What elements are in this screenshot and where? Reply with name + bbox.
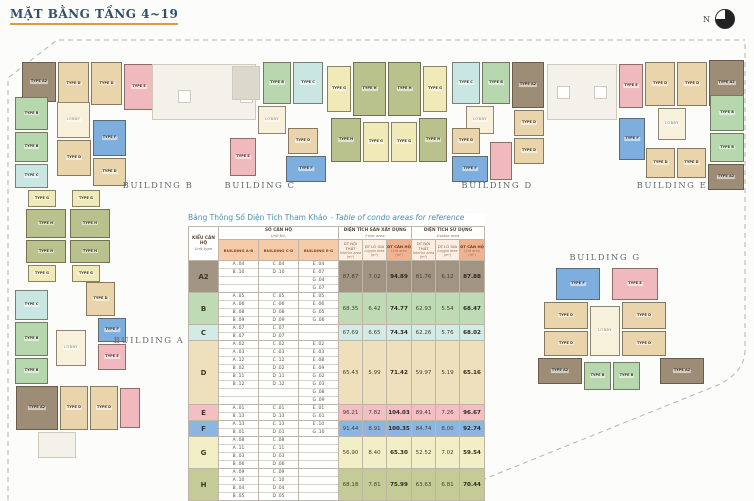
plan-unit-d: TYPE D — [60, 386, 88, 430]
plan-unit-f: TYPE F — [619, 118, 645, 160]
unit-type-vn: KIỂU CĂN HỘ — [189, 236, 218, 246]
loggia-area-value: 5.54 — [436, 293, 460, 325]
plan-unit-d: TYPE D — [93, 158, 126, 186]
col-header-loggia-floor: DT LÔ GIA Loggia area (m²) — [363, 240, 387, 261]
unit-area-value: 59.54 — [460, 437, 485, 469]
unit-number: C .01 — [259, 405, 298, 413]
plan-unit-d: TYPE D — [514, 110, 544, 136]
plan-unit-label: TYPE D — [92, 297, 108, 301]
plan-lobby: LOBBY — [57, 102, 90, 138]
interior-area-value: 84.74 — [412, 421, 436, 437]
area-row-f: FA .13B .01C .13D .01E .10G .1091.448.91… — [189, 421, 485, 437]
unit-number: D .05 — [259, 493, 298, 500]
plan-unit-a2: TYPE A2 — [22, 62, 56, 102]
loggia-area-value: 5.99 — [363, 341, 387, 405]
interior-area-value: 59.97 — [412, 341, 436, 405]
unit-number: B .02 — [219, 365, 258, 373]
plan-area — [232, 66, 260, 100]
col-header-interior-floor: DT NỘI THẤT Interior area (m²) — [339, 240, 363, 261]
unit-numbers-ab: A .07B .07 — [219, 325, 259, 341]
unit-numbers-cd: C .01D .13 — [259, 405, 299, 421]
unit-number — [299, 445, 338, 453]
col-header-unit-type: KIỂU CĂN HỘ Unit type — [189, 227, 219, 261]
unit-numbers-eg: E .05E .06G .05G .06 — [299, 293, 339, 325]
unit-number: B .11 — [219, 373, 258, 381]
unit-number: G .02 — [299, 373, 338, 381]
sub-vn: DT LÔ GIA — [363, 244, 386, 249]
unit-number — [299, 485, 338, 493]
plan-unit-d: TYPE D — [58, 62, 89, 105]
unit-type-cell: B — [189, 293, 219, 325]
interior-area-value: 91.44 — [339, 421, 363, 437]
plan-unit-h: TYPE H — [419, 118, 447, 162]
unit-numbers-cd: C .02C .03C .12D .02D .11D .12 — [259, 341, 299, 405]
area-table-section: Bảng Thông Số Diện Tích Tham Khảo- Table… — [188, 213, 485, 501]
plan-unit-d: TYPE D — [544, 302, 588, 329]
unit-numbers-ab: A .09A .10B .04B .05 — [219, 469, 259, 501]
loggia-area-value: 7.02 — [363, 261, 387, 293]
floor-area-en: Floor area — [339, 233, 411, 238]
unit-number: E .01 — [299, 405, 338, 413]
unit-number — [299, 477, 338, 485]
unit-number — [259, 397, 298, 404]
unit-number — [219, 285, 258, 292]
plan-unit-label: TYPE D — [521, 121, 537, 125]
plan-unit-label: TYPE E — [623, 84, 639, 88]
unit-number: D .01 — [259, 429, 298, 436]
plan-unit-g: TYPE G — [423, 66, 447, 112]
unit-number: G .07 — [299, 285, 338, 292]
plan-unit-label: TYPE D — [66, 156, 82, 160]
plan-unit-label: TYPE F — [102, 136, 118, 140]
plan-unit-d: TYPE D — [645, 62, 675, 106]
plan-unit-label: TYPE H — [82, 250, 98, 254]
plan-unit-f: TYPE F — [286, 156, 326, 182]
col-header-building-ab: BUILDING A-B — [219, 240, 259, 261]
unit-number: B .09 — [219, 317, 258, 324]
interior-area-value: 96.21 — [339, 405, 363, 421]
interior-area-value: 89.41 — [412, 405, 436, 421]
interior-area-value: 87.87 — [339, 261, 363, 293]
building-e-label: BUILDING E — [637, 181, 708, 191]
unit-number: C .07 — [259, 325, 298, 333]
plan-unit-g: TYPE G — [28, 190, 56, 207]
plan-lobby-label: LOBBY — [597, 329, 613, 333]
plan-unit-label: TYPE E — [104, 355, 120, 359]
unit-numbers-eg — [299, 437, 339, 469]
unit-number: B .04 — [219, 485, 258, 493]
unit-number: A .03 — [219, 349, 258, 357]
plan-unit-b: TYPE B — [15, 132, 48, 162]
unit-number: C .04 — [259, 261, 298, 269]
plan-unit-label: TYPE D — [98, 82, 114, 86]
unit-number: G .09 — [299, 397, 338, 404]
unit-numbers-ab: A .05A .06B .08B .09 — [219, 293, 259, 325]
plan-unit-label: TYPE D — [458, 139, 474, 143]
unit-type-cell: D — [189, 341, 219, 405]
unit-number: C .13 — [259, 421, 298, 429]
plan-unit-d: TYPE D — [288, 128, 318, 154]
plan-unit-label: TYPE E — [627, 282, 643, 286]
plan-unit-label: TYPE G — [78, 272, 94, 276]
plan-unit-h: TYPE H — [388, 62, 421, 116]
unit-area-value: 70.44 — [460, 469, 485, 501]
loggia-area-value: 5.19 — [436, 341, 460, 405]
unit-area-value: 104.03 — [387, 405, 412, 421]
plan-unit-label: TYPE G — [427, 87, 443, 91]
unit-numbers-cd: C .04D .10 — [259, 261, 299, 293]
plan-unit-e — [120, 388, 140, 428]
plan-unit-e: TYPE E — [619, 64, 643, 108]
plan-unit-label: TYPE D — [521, 149, 537, 153]
unit-numbers-eg — [299, 469, 339, 501]
plan-unit-a2: TYPE A2 — [660, 358, 704, 384]
interior-area-value: 56.90 — [339, 437, 363, 469]
sub-unit: (m²) — [436, 253, 459, 257]
plan-unit-h: TYPE H — [70, 240, 110, 263]
sub-en: Loggia area — [363, 249, 386, 253]
plan-unit-d: TYPE D — [91, 62, 122, 105]
unit-number: B .07 — [219, 333, 258, 340]
unit-number — [219, 389, 258, 397]
unit-area-value: 75.99 — [387, 469, 412, 501]
area-table-header: KIỂU CĂN HỘ Unit type SỐ CĂN HỘ Unit No.… — [189, 227, 485, 261]
plan-unit-g: TYPE G — [391, 122, 417, 162]
unit-number: A .08 — [219, 437, 258, 445]
plan-unit-d: TYPE D — [544, 331, 588, 356]
plan-unit-label: TYPE H — [82, 222, 98, 226]
plan-unit-h: TYPE H — [70, 209, 110, 238]
sub-unit: (m²) — [460, 253, 484, 257]
loggia-area-value: 7.81 — [363, 469, 387, 501]
building-b-label: BUILDING B — [123, 181, 194, 191]
plan-unit-label: TYPE G — [396, 140, 412, 144]
interior-area-value: 52.52 — [412, 437, 436, 469]
unit-number: B .06 — [219, 461, 258, 468]
plan-unit-label: TYPE G — [78, 197, 94, 201]
unit-number: A .02 — [219, 341, 258, 349]
plan-unit-d: TYPE D — [622, 302, 666, 329]
plan-unit-label: TYPE H — [396, 87, 412, 91]
unit-numbers-ab: A .04B .10 — [219, 261, 259, 293]
plan-unit-a2: TYPE A2 — [16, 386, 58, 430]
plan-lobby-label: LOBBY — [264, 118, 280, 122]
unit-numbers-eg: E .01G .01 — [299, 405, 339, 421]
unit-type-cell: C — [189, 325, 219, 341]
plan-unit-label: TYPE B — [719, 111, 735, 115]
unit-type-cell: G — [189, 437, 219, 469]
plan-unit-c: TYPE C — [15, 164, 48, 188]
unit-area-value: 94.89 — [387, 261, 412, 293]
col-header-unit-no: SỐ CĂN HỘ Unit No. — [219, 227, 339, 240]
unit-number: C .09 — [259, 469, 298, 477]
unit-number: A .10 — [219, 477, 258, 485]
plan-unit-label: TYPE F — [104, 328, 120, 332]
plan-unit-b: TYPE B — [613, 362, 640, 390]
plan-unit-e — [490, 142, 512, 180]
sub-vn: DT NỘI THẤT — [339, 241, 362, 251]
unit-number: D .08 — [259, 309, 298, 317]
area-row-c: CA .07B .07C .07D .07 67.696.6574.3462.2… — [189, 325, 485, 341]
col-header-building-eg: BUILDING E-G — [299, 240, 339, 261]
plan-unit-e: TYPE E — [612, 268, 658, 300]
plan-unit-h: TYPE H — [26, 240, 66, 263]
area-row-h: HA .09A .10B .04B .05C .09C .10D .04D .0… — [189, 469, 485, 501]
loggia-area-value: 7.26 — [436, 405, 460, 421]
plan-unit-label: TYPE D — [101, 170, 117, 174]
unit-number: D .07 — [259, 333, 298, 340]
unit-numbers-ab: A .02A .03A .12B .02B .11B .12 — [219, 341, 259, 405]
unit-number — [299, 453, 338, 461]
plan-unit-label: TYPE B — [24, 337, 40, 341]
plan-unit-label: TYPE D — [558, 342, 574, 346]
plan-unit-label: TYPE B — [488, 81, 504, 85]
plan-unit-f: TYPE F — [93, 120, 126, 156]
plan-unit-b: TYPE B — [15, 97, 48, 130]
unit-number: G .06 — [299, 317, 338, 324]
area-table-body: A2A .04B .10 C .04D .10 E .04E .07G .04G… — [189, 261, 485, 501]
unit-number: D .03 — [259, 453, 298, 461]
unit-number: G .10 — [299, 429, 338, 436]
loggia-area-value: 8.40 — [363, 437, 387, 469]
unit-number — [299, 325, 338, 333]
sub-vn: DT CĂN HỘ — [387, 244, 411, 249]
unit-number: C .12 — [259, 357, 298, 365]
plan-unit-g: TYPE G — [28, 265, 56, 282]
unit-number: E .08 — [299, 357, 338, 365]
page-title: MẶT BẰNG TẦNG 4~19 — [10, 7, 178, 25]
unit-area-value: 65.30 — [387, 437, 412, 469]
unit-number: E .09 — [299, 365, 338, 373]
unit-number: C .03 — [259, 349, 298, 357]
unit-number — [299, 461, 338, 468]
unit-numbers-cd: C .09C .10D .04D .05 — [259, 469, 299, 501]
plan-unit-label: TYPE D — [684, 82, 700, 86]
plan-unit-label: TYPE C — [458, 81, 474, 85]
plan-unit-label: TYPE F — [570, 282, 586, 286]
plan-unit-label: TYPE B — [24, 112, 40, 116]
loggia-area-value: 7.02 — [436, 437, 460, 469]
plan-unit-label: TYPE H — [38, 222, 54, 226]
unit-number: A .12 — [219, 357, 258, 365]
unit-numbers-eg: E .02E .03E .08E .09G .02G .03G .08G .09 — [299, 341, 339, 405]
unit-number: E .02 — [299, 341, 338, 349]
plan-unit-d: TYPE D — [646, 148, 675, 178]
table-caption: Bảng Thông Số Diện Tích Tham Khảo- Table… — [188, 213, 485, 222]
plan-unit-label: TYPE G — [368, 140, 384, 144]
area-row-g: GA .08A .11B .03B .06C .08C .11D .03D .0… — [189, 437, 485, 469]
plan-unit-label: TYPE D — [683, 161, 699, 165]
unit-number: E .03 — [299, 349, 338, 357]
unit-number: A .05 — [219, 293, 258, 301]
compass-icon — [712, 6, 738, 32]
plan-unit-label: TYPE C — [24, 303, 40, 307]
unit-number: C .08 — [259, 437, 298, 445]
plan-unit-label: TYPE F — [624, 137, 640, 141]
unit-type-cell: F — [189, 421, 219, 437]
plan-unit-label: TYPE D — [295, 139, 311, 143]
unit-numbers-eg — [299, 325, 339, 341]
unit-area-value: 100.35 — [387, 421, 412, 437]
plan-unit-label: TYPE B — [719, 146, 735, 150]
unit-number: A .01 — [219, 405, 258, 413]
plan-unit-c: TYPE C — [15, 290, 48, 320]
plan-unit-f: TYPE F — [452, 156, 488, 182]
plan-unit-b: TYPE B — [15, 358, 48, 384]
plan-area — [557, 86, 570, 99]
plan-unit-label: TYPE A2 — [717, 175, 735, 179]
sub-vn: DT CĂN HỘ — [460, 244, 484, 249]
interior-area-value: 65.43 — [339, 341, 363, 405]
plan-unit-label: TYPE D — [65, 82, 81, 86]
unit-number: B .13 — [219, 413, 258, 420]
unit-area-value: 74.77 — [387, 293, 412, 325]
plan-unit-d: TYPE D — [90, 386, 118, 430]
unit-numbers-ab: A .13B .01 — [219, 421, 259, 437]
plan-unit-label: TYPE G — [34, 197, 50, 201]
unit-number: D .04 — [259, 485, 298, 493]
usable-area-en: Usable area — [412, 233, 484, 238]
unit-number — [299, 493, 338, 500]
north-label: N — [703, 15, 710, 24]
unit-number — [259, 389, 298, 397]
unit-number: G .04 — [299, 277, 338, 285]
plan-unit-d: TYPE D — [677, 62, 707, 106]
unit-number — [219, 277, 258, 285]
plan-unit-g: TYPE G — [363, 122, 389, 162]
unit-number: D .02 — [259, 365, 298, 373]
unit-number: C .10 — [259, 477, 298, 485]
col-header-unit-area-usable: DT CĂN HỘ Unit area (m²) — [460, 240, 485, 261]
unit-area-value: 92.74 — [460, 421, 485, 437]
plan-unit-label: TYPE D — [96, 406, 112, 410]
table-caption-vn: Bảng Thông Số Diện Tích Tham Khảo — [188, 213, 327, 222]
table-caption-en: - Table of condo areas for reference — [330, 213, 464, 222]
loggia-area-value: 6.42 — [363, 293, 387, 325]
plan-unit-label: TYPE E — [131, 85, 147, 89]
plan-unit-label: TYPE A2 — [30, 80, 48, 84]
unit-numbers-cd: C .05C .06D .08D .09 — [259, 293, 299, 325]
plan-unit-label: TYPE A2 — [717, 81, 735, 85]
plan-unit-a2: TYPE A2 — [538, 358, 582, 384]
building-d-label: BUILDING D — [461, 181, 532, 191]
plan-area — [594, 86, 607, 99]
interior-area-value: 68.18 — [339, 469, 363, 501]
plan-lobby-label: LOBBY — [63, 346, 79, 350]
unit-number: E .05 — [299, 293, 338, 301]
plan-unit-label: TYPE H — [361, 87, 377, 91]
unit-number — [219, 397, 258, 404]
plan-unit-label: TYPE E — [235, 155, 251, 159]
area-row-e: EA .01B .13C .01D .13E .01G .0196.217.82… — [189, 405, 485, 421]
unit-type-en: Unit type — [189, 246, 218, 251]
sub-unit: (m²) — [339, 255, 362, 259]
sub-vn: DT NỘI THẤT — [412, 241, 435, 251]
unit-number: E .04 — [299, 261, 338, 269]
unit-number: C .02 — [259, 341, 298, 349]
loggia-area-value: 6.65 — [363, 325, 387, 341]
unit-number: G .08 — [299, 389, 338, 397]
area-row-d: DA .02A .03A .12B .02B .11B .12 C .02C .… — [189, 341, 485, 405]
plan-unit-label: TYPE H — [38, 250, 54, 254]
plan-unit-b: TYPE B — [710, 95, 744, 131]
unit-numbers-cd: C .13D .01 — [259, 421, 299, 437]
unit-area-value: 87.88 — [460, 261, 485, 293]
col-header-floor-area: DIỆN TÍCH SÀN XÂY DỰNG Floor area — [339, 227, 412, 240]
unit-number: E .06 — [299, 301, 338, 309]
plan-unit-d: TYPE D — [86, 282, 115, 316]
loggia-area-value: 7.82 — [363, 405, 387, 421]
plan-unit-c: TYPE C — [452, 62, 480, 104]
unit-numbers-ab: A .01B .13 — [219, 405, 259, 421]
unit-numbers-eg: E .10G .10 — [299, 421, 339, 437]
unit-number: A .11 — [219, 445, 258, 453]
unit-number — [299, 333, 338, 340]
loggia-area-value: 8.00 — [436, 421, 460, 437]
unit-number — [259, 277, 298, 285]
area-table: KIỂU CĂN HỘ Unit type SỐ CĂN HỘ Unit No.… — [188, 226, 485, 501]
plan-lobby: LOBBY — [658, 108, 686, 140]
unit-numbers-eg: E .04E .07G .04G .07 — [299, 261, 339, 293]
unit-number: E .07 — [299, 269, 338, 277]
plan-unit-label: TYPE H — [425, 138, 441, 142]
interior-area-value: 63.63 — [412, 469, 436, 501]
building-c-label: BUILDING C — [224, 181, 295, 191]
unit-type-cell: A2 — [189, 261, 219, 293]
area-row-b: BA .05A .06B .08B .09C .05C .06D .08D .0… — [189, 293, 485, 325]
plan-unit-label: TYPE D — [652, 161, 668, 165]
plan-lobby-label: LOBBY — [472, 118, 488, 122]
plan-area — [38, 432, 76, 458]
col-header-building-cd: BUILDING C-D — [259, 240, 299, 261]
plan-unit-b: TYPE B — [710, 133, 744, 162]
plan-unit-b: TYPE B — [482, 62, 510, 104]
unit-number: A .13 — [219, 421, 258, 429]
unit-numbers-cd: C .07D .07 — [259, 325, 299, 341]
unit-number: E .10 — [299, 421, 338, 429]
unit-number: D .06 — [259, 461, 298, 468]
unit-number: A .06 — [219, 301, 258, 309]
interior-area-value: 81.76 — [412, 261, 436, 293]
unit-number: B .05 — [219, 493, 258, 500]
plan-unit-d: TYPE D — [452, 128, 480, 154]
plan-unit-f: TYPE F — [556, 268, 600, 300]
sub-unit: (m²) — [412, 255, 435, 259]
unit-type-cell: H — [189, 469, 219, 501]
plan-unit-b: TYPE B — [263, 62, 291, 104]
plan-lobby-label: LOBBY — [664, 122, 680, 126]
page-canvas: MẶT BẰNG TẦNG 4~19 N TYPE A2TYPE DTYPE D… — [0, 0, 754, 500]
interior-area-value: 67.69 — [339, 325, 363, 341]
plan-lobby: LOBBY — [590, 306, 620, 356]
unit-number: B .10 — [219, 269, 258, 277]
unit-numbers-cd: C .08C .11D .03D .06 — [259, 437, 299, 469]
building-a-label: BUILDING A — [114, 336, 185, 346]
unit-area-value: 74.34 — [387, 325, 412, 341]
area-row-a2: A2A .04B .10 C .04D .10 E .04E .07G .04G… — [189, 261, 485, 293]
plan-unit-label: TYPE B — [24, 145, 40, 149]
unit-area-value: 71.42 — [387, 341, 412, 405]
north-compass: N — [703, 6, 738, 32]
sub-en: Loggia area — [436, 249, 459, 253]
plan-unit-a2: TYPE A2 — [512, 62, 544, 108]
interior-area-value: 68.35 — [339, 293, 363, 325]
plan-unit-label: TYPE D — [636, 314, 652, 318]
loggia-area-value: 5.76 — [436, 325, 460, 341]
interior-area-value: 62.93 — [412, 293, 436, 325]
plan-unit-d: TYPE D — [622, 331, 666, 356]
plan-unit-label: TYPE C — [24, 174, 40, 178]
